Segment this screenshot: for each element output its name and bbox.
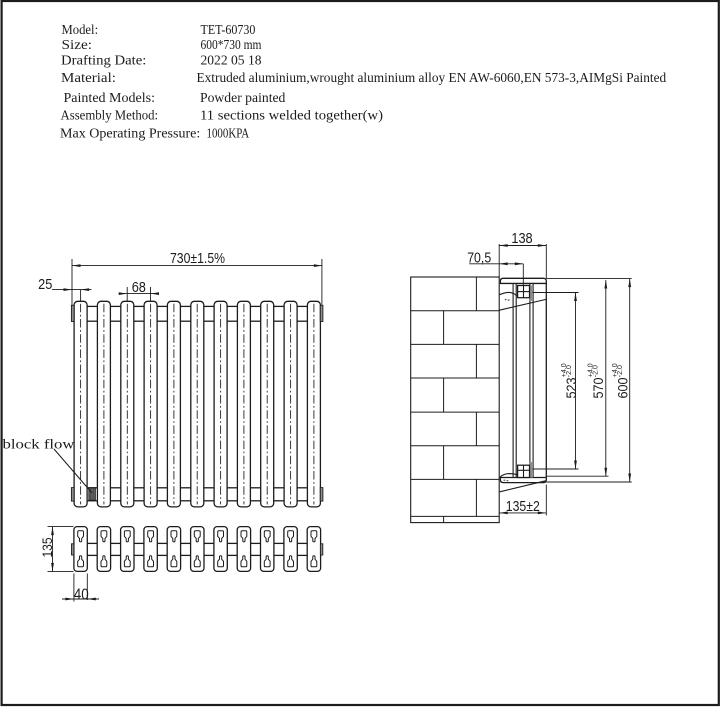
svg-text:600: 600 [614, 377, 630, 398]
svg-text:138: 138 [511, 231, 532, 247]
svg-text:Powder painted: Powder painted [200, 91, 285, 106]
svg-text:block flow: block flow [3, 437, 75, 452]
svg-text:1000KPA: 1000KPA [207, 127, 250, 142]
svg-text:Extruded aluminium,wrought alu: Extruded aluminium,wrought aluminium all… [197, 71, 667, 86]
svg-text:Size:: Size: [62, 38, 93, 53]
svg-text:Drafting Date:: Drafting Date: [61, 54, 146, 69]
svg-text:Material:: Material: [61, 71, 116, 86]
svg-text:730±1.5%: 730±1.5% [170, 251, 225, 267]
svg-text:570: 570 [590, 377, 606, 398]
svg-text:Painted Models:: Painted Models: [64, 91, 156, 106]
svg-text:2022 05 18: 2022 05 18 [201, 54, 262, 69]
svg-text:-2.0: -2.0 [617, 365, 624, 377]
svg-text:TET-60730: TET-60730 [201, 23, 256, 38]
svg-text:40: 40 [74, 587, 89, 604]
svg-text:523: 523 [563, 377, 579, 398]
svg-text:135: 135 [39, 537, 55, 557]
svg-text:Assembly Method:: Assembly Method: [61, 109, 159, 124]
svg-text:135±2: 135±2 [506, 499, 540, 515]
svg-text:25: 25 [38, 277, 52, 293]
svg-text:-2.0: -2.0 [593, 365, 600, 377]
svg-text:Max Operating Pressure:: Max Operating Pressure: [60, 127, 200, 142]
svg-text:Model:: Model: [62, 23, 99, 38]
svg-text:11 sections welded together(w): 11 sections welded together(w) [200, 109, 383, 124]
svg-text:-2.0: -2.0 [566, 365, 573, 377]
svg-text:600*730 mm: 600*730 mm [201, 38, 262, 53]
